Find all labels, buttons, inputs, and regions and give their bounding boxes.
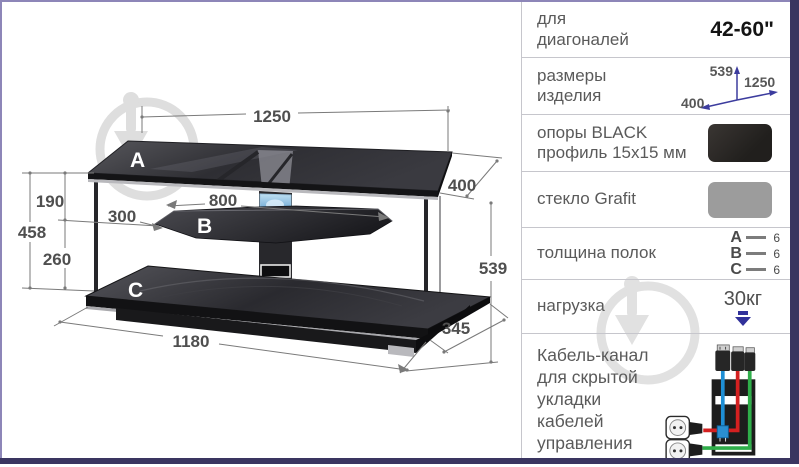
page-border-top <box>0 0 799 2</box>
size-axis-icon: 539 1250 400 <box>679 60 784 112</box>
dim-top-depth: 400 <box>448 176 476 195</box>
dim-shelf-gap-top: 190 <box>36 192 64 211</box>
spec-row-supports: опоры BLACK профиль 15x15 мм <box>522 114 790 171</box>
page-border-right <box>790 0 799 464</box>
thickness-value: 6 <box>773 247 780 261</box>
spec-row-diagonal: для диагоналей 42-60" <box>522 2 790 57</box>
shelf-a-label: A <box>130 149 145 172</box>
load-value: 30кг <box>724 288 762 311</box>
diagonal-label: для диагоналей <box>537 9 655 49</box>
load-label: нагрузка <box>537 296 605 316</box>
dash-icon <box>746 252 766 255</box>
blue-connector <box>717 426 728 438</box>
thickness-row-b: B 6 <box>730 246 780 262</box>
grafit-glass-swatch <box>708 182 772 218</box>
spec-row-size: размеры изделия 539 1250 400 <box>522 57 790 114</box>
page-border-bottom <box>0 458 799 464</box>
dim-base-depth: 345 <box>442 319 470 338</box>
spec-row-glass: стекло Grafit <box>522 171 790 227</box>
spec-row-load: нагрузка 30кг <box>522 279 790 333</box>
dim-top-width: 1250 <box>253 107 291 126</box>
cable-label: Кабель-канал для скрытой укладки кабелей… <box>537 344 654 454</box>
dim-shelf-gap-bottom: 260 <box>43 250 71 269</box>
dash-icon <box>746 268 766 271</box>
spec-row-cable: Кабель-канал для скрытой укладки кабелей… <box>522 333 790 458</box>
thickness-row-a: A 6 <box>730 230 780 246</box>
bottom-shelf: C <box>86 266 490 357</box>
top-shelf: A <box>88 141 452 200</box>
dim-middle-shelf-inset: 300 <box>108 207 136 226</box>
spec-row-thickness: толщина полок A 6 B 6 C 6 <box>522 227 790 279</box>
glass-label: стекло Grafit <box>537 189 636 209</box>
tv-stand-drawing: A B C <box>0 0 521 464</box>
thickness-values: A 6 B 6 C 6 <box>730 230 780 278</box>
page-border-left <box>0 0 2 464</box>
thickness-label: толщина полок <box>537 243 687 263</box>
dim-total-height: 539 <box>479 259 507 278</box>
thickness-letter: C <box>730 261 745 279</box>
load-value-block: 30кг <box>724 288 762 326</box>
dim-base-width: 1180 <box>173 332 210 351</box>
shelf-b-label: B <box>197 215 212 238</box>
cable-channel-illustration <box>654 344 786 467</box>
axis-height-value: 539 <box>710 63 734 79</box>
supports-label: опоры BLACK профиль 15x15 мм <box>537 123 708 163</box>
spec-panel: для диагоналей 42-60" размеры изделия 53… <box>521 2 790 458</box>
dim-side-height: 458 <box>18 223 46 242</box>
size-label: размеры изделия <box>537 66 655 106</box>
middle-shelf: B <box>155 206 392 243</box>
diagonal-value: 42-60" <box>710 18 774 42</box>
axis-width-value: 1250 <box>744 74 775 90</box>
power-socket-icon <box>666 416 702 438</box>
shelf-c-label: C <box>128 279 143 302</box>
axis-depth-value: 400 <box>681 95 705 111</box>
dim-middle-shelf-width: 800 <box>209 191 237 210</box>
thickness-value: 6 <box>773 231 780 245</box>
black-profile-swatch <box>708 124 772 162</box>
thickness-value: 6 <box>773 263 780 277</box>
thickness-row-c: C 6 <box>730 262 780 278</box>
load-down-arrow-icon <box>733 311 753 326</box>
dash-icon <box>746 236 766 239</box>
connector-plugs-icon <box>715 345 755 371</box>
